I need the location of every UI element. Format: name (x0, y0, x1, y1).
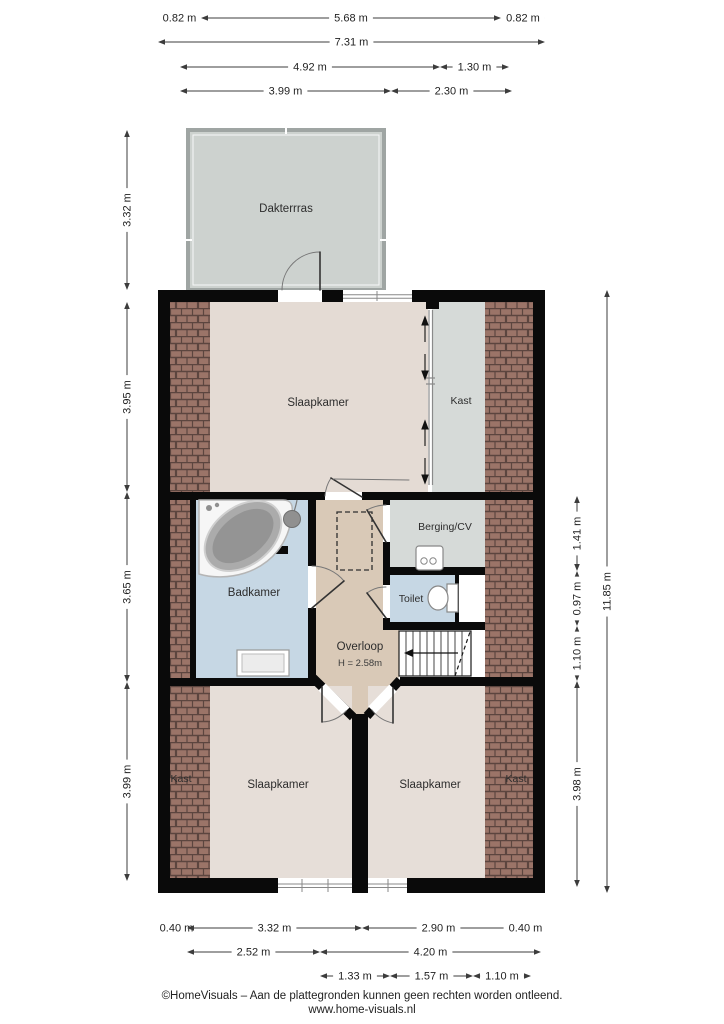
kast-top-label: Kast (450, 395, 471, 407)
wall-top-right (412, 290, 545, 302)
dim-horizontal: 2.90 m (362, 922, 515, 935)
dim-horizontal: 2.52 m (187, 946, 320, 959)
wall-kast-stub (426, 302, 439, 309)
dim-horizontal: 1.57 m (390, 970, 473, 983)
overloop-height-label: H = 2.58m (338, 658, 382, 669)
badkamer-label: Badkamer (228, 587, 281, 599)
dim-vertical: 0.97 m (571, 571, 584, 626)
wall-bottom-left (158, 878, 278, 893)
dim-label: 1.57 m (415, 971, 449, 983)
dim-label: 3.99 m (269, 86, 303, 98)
dim-label: 3.32 m (258, 923, 292, 935)
room-kast-top: Kast (432, 302, 485, 492)
dim-label: 2.90 m (422, 923, 456, 935)
toilet-label: Toilet (399, 593, 424, 605)
wall-top-mid (322, 290, 343, 302)
wall-left (158, 290, 170, 893)
room-slaapkamer-bottom-left: Slaapkamer (210, 686, 352, 881)
dim-vertical: 11.85 m (601, 290, 614, 893)
room-slaapkamer-top: Slaapkamer (210, 302, 428, 492)
dim-label: 0.82 m (163, 13, 197, 25)
wall-bottom-right (407, 878, 545, 893)
terrace-door-opening (278, 290, 322, 302)
dim-horizontal: 0.40 m (504, 922, 548, 935)
dim-label: 3.95 m (122, 380, 134, 414)
shaft-closet-floor (459, 575, 485, 622)
dim-label: 1.10 m (485, 971, 519, 983)
dim-horizontal: 1.33 m (320, 970, 390, 983)
dim-vertical: 3.98 m (571, 681, 584, 887)
dim-vertical: 3.65 m (121, 492, 134, 682)
dim-label: 3.32 m (122, 193, 134, 227)
dim-horizontal: 5.68 m (201, 12, 501, 25)
wall-top-left (158, 290, 278, 302)
slaapkamer-br-label: Slaapkamer (399, 779, 461, 791)
berging-label: Berging/CV (418, 521, 472, 533)
dim-horizontal: 3.99 m (180, 85, 391, 98)
wall-bottom-mid (352, 878, 368, 893)
window-bottom-left (278, 878, 352, 893)
floorplan-page: Dakterrras Slaapkamer Kast Badkamer Over… (0, 0, 724, 1024)
kast-bottom-left-label: Kast (170, 773, 191, 785)
wall-mid-left (166, 492, 325, 500)
wall-right (533, 290, 545, 893)
dim-label: 0.40 m (509, 923, 543, 935)
footer: ©HomeVisuals – Aan de plattegronden kunn… (162, 990, 563, 1016)
dim-horizontal: 1.10 m (473, 970, 531, 983)
dim-vertical: 3.99 m (121, 682, 134, 881)
room-dakterras: Dakterrras (184, 126, 388, 290)
dim-label: 1.33 m (338, 971, 372, 983)
bathtub-faucet (206, 505, 212, 511)
roof-slope-right (485, 302, 533, 881)
wall-toilet-bottom (383, 622, 485, 630)
dim-horizontal: 3.32 m (187, 922, 362, 935)
cv-boiler (416, 546, 443, 570)
dim-label: 1.41 m (572, 517, 584, 551)
dim-vertical: 3.32 m (121, 130, 134, 290)
dim-label: 3.99 m (122, 765, 134, 799)
wall-badkamer-left (190, 494, 196, 686)
stairs (399, 631, 471, 676)
wall-badkamer-right-a (308, 500, 316, 566)
dim-label: 1.10 m (572, 637, 584, 671)
dim-label: 7.31 m (335, 37, 369, 49)
dim-label: 11.85 m (602, 572, 614, 611)
floorplan-canvas: Dakterrras Slaapkamer Kast Badkamer Over… (0, 0, 724, 1024)
dim-horizontal: 4.20 m (320, 946, 541, 959)
dim-horizontal: 2.30 m (391, 85, 512, 98)
wall-badkamer-bottom (166, 678, 316, 686)
wall-center-bottom (352, 714, 368, 878)
wall-badkamer-right-b (308, 608, 316, 682)
dakterras-label: Dakterrras (259, 203, 313, 215)
dim-label: 5.68 m (334, 13, 368, 25)
dim-label: 4.92 m (293, 62, 327, 74)
kast-bottom-right-label: Kast (505, 773, 526, 785)
sink (237, 650, 289, 676)
dim-horizontal: 4.92 m (180, 61, 440, 74)
dim-label: 3.65 m (122, 570, 134, 604)
dim-horizontal: 0.82 m (501, 12, 545, 25)
dim-label: 3.98 m (572, 767, 584, 801)
dim-horizontal: 0.82 m (158, 12, 202, 25)
wall-toilet-left-a (383, 575, 390, 585)
dim-label: 0.82 m (506, 13, 540, 25)
dim-label: 2.52 m (237, 947, 271, 959)
footer-disclaimer: ©HomeVisuals – Aan de plattegronden kunn… (162, 990, 563, 1002)
slaapkamer-top-label: Slaapkamer (287, 397, 349, 409)
toilet-fixture (428, 584, 458, 612)
slaapkamer-bl-label: Slaapkamer (247, 779, 309, 791)
dim-label: 0.97 m (572, 582, 584, 616)
room-slaapkamer-bottom-right: Slaapkamer (368, 686, 485, 881)
dim-label: 1.30 m (458, 62, 492, 74)
dim-horizontal: 7.31 m (158, 36, 545, 49)
dim-label: 2.30 m (435, 86, 469, 98)
dim-label: 4.20 m (414, 947, 448, 959)
dim-vertical: 1.10 m (571, 626, 584, 681)
dim-horizontal: 1.30 m (440, 61, 509, 74)
overloop-label: Overloop (337, 641, 384, 653)
wall-berging-left-a (383, 500, 390, 505)
dim-vertical: 3.95 m (121, 302, 134, 492)
wall-under-stairs (400, 677, 533, 686)
wall-mid-right (362, 492, 533, 500)
dim-vertical: 1.41 m (571, 496, 584, 571)
footer-url: www.home-visuals.nl (307, 1004, 415, 1016)
